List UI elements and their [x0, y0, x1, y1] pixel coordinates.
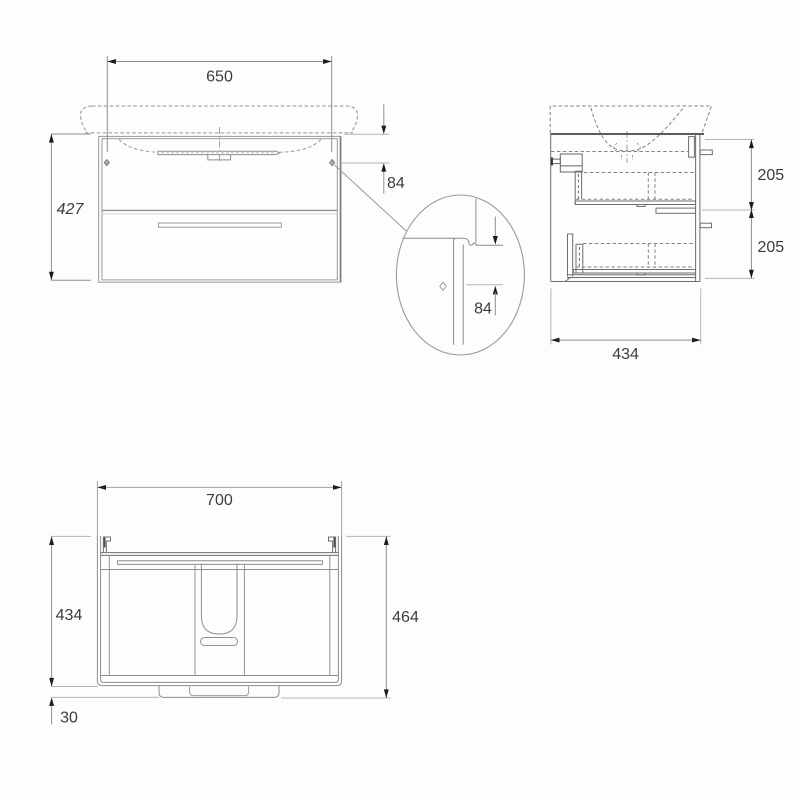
svg-text:30: 30 [60, 710, 78, 727]
svg-text:205: 205 [758, 167, 785, 184]
svg-text:434: 434 [56, 607, 83, 624]
svg-text:464: 464 [392, 609, 419, 626]
svg-text:700: 700 [206, 492, 233, 509]
svg-text:434: 434 [612, 346, 639, 363]
svg-text:427: 427 [57, 201, 85, 218]
svg-text:84: 84 [474, 301, 492, 318]
svg-text:84: 84 [387, 175, 405, 192]
svg-text:650: 650 [206, 69, 233, 86]
svg-text:205: 205 [758, 239, 785, 256]
